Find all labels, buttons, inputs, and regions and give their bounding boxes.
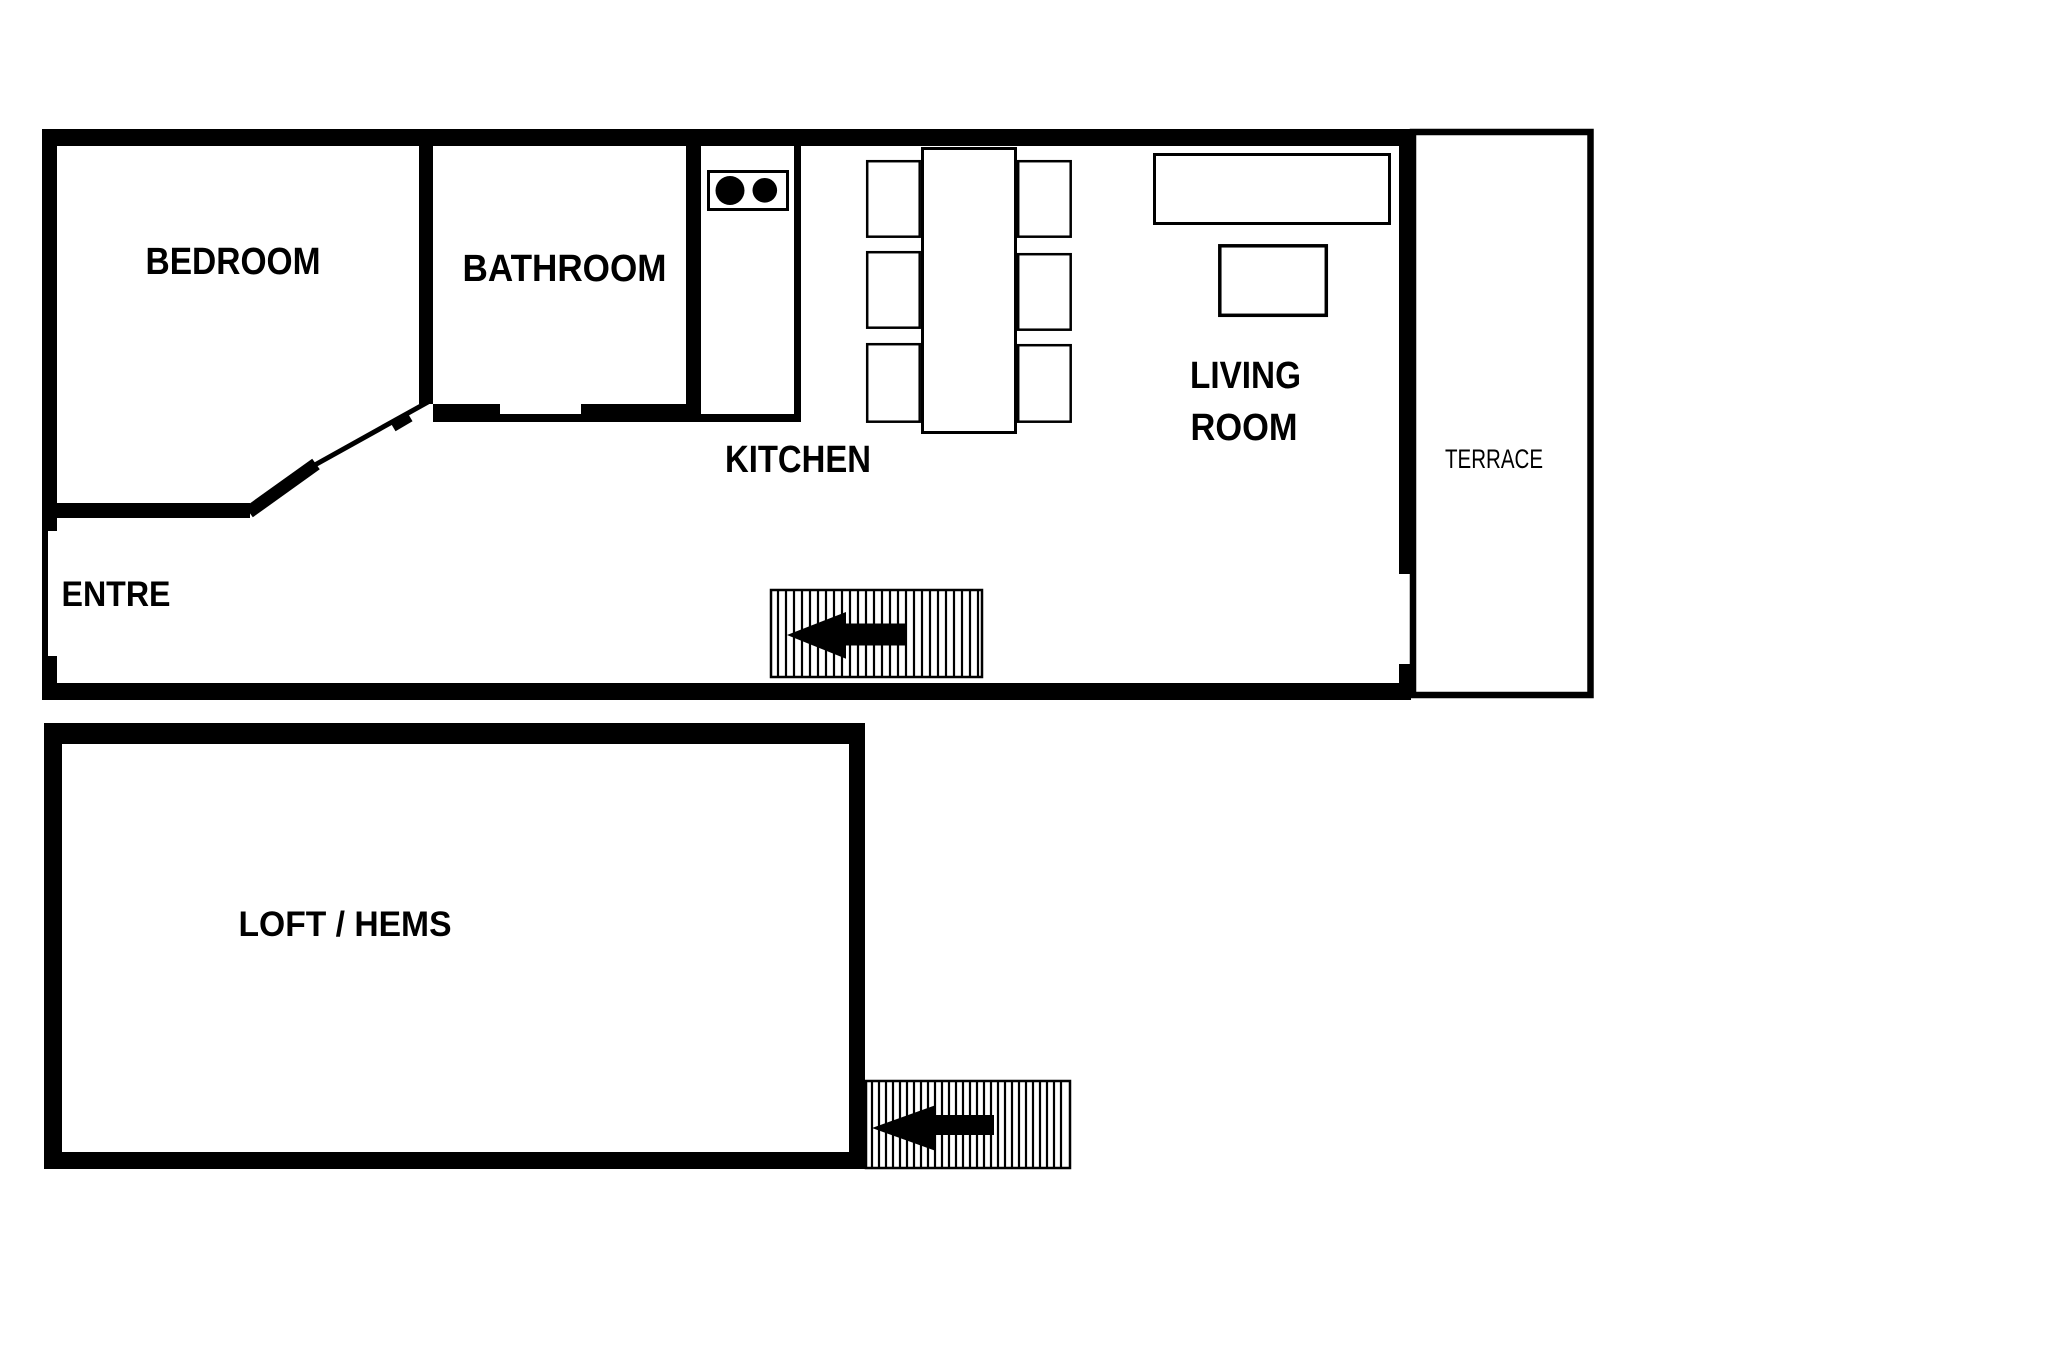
svg-text:ROOM: ROOM	[1191, 407, 1298, 449]
svg-text:LIVING: LIVING	[1190, 355, 1301, 397]
svg-text:BEDROOM: BEDROOM	[146, 241, 321, 283]
svg-text:ENTRE: ENTRE	[62, 575, 171, 614]
svg-text:KITCHEN: KITCHEN	[725, 439, 871, 481]
svg-text:LOFT / HEMS: LOFT / HEMS	[239, 905, 452, 944]
svg-text:TERRACE: TERRACE	[1445, 444, 1543, 474]
svg-text:BATHROOM: BATHROOM	[463, 248, 667, 290]
